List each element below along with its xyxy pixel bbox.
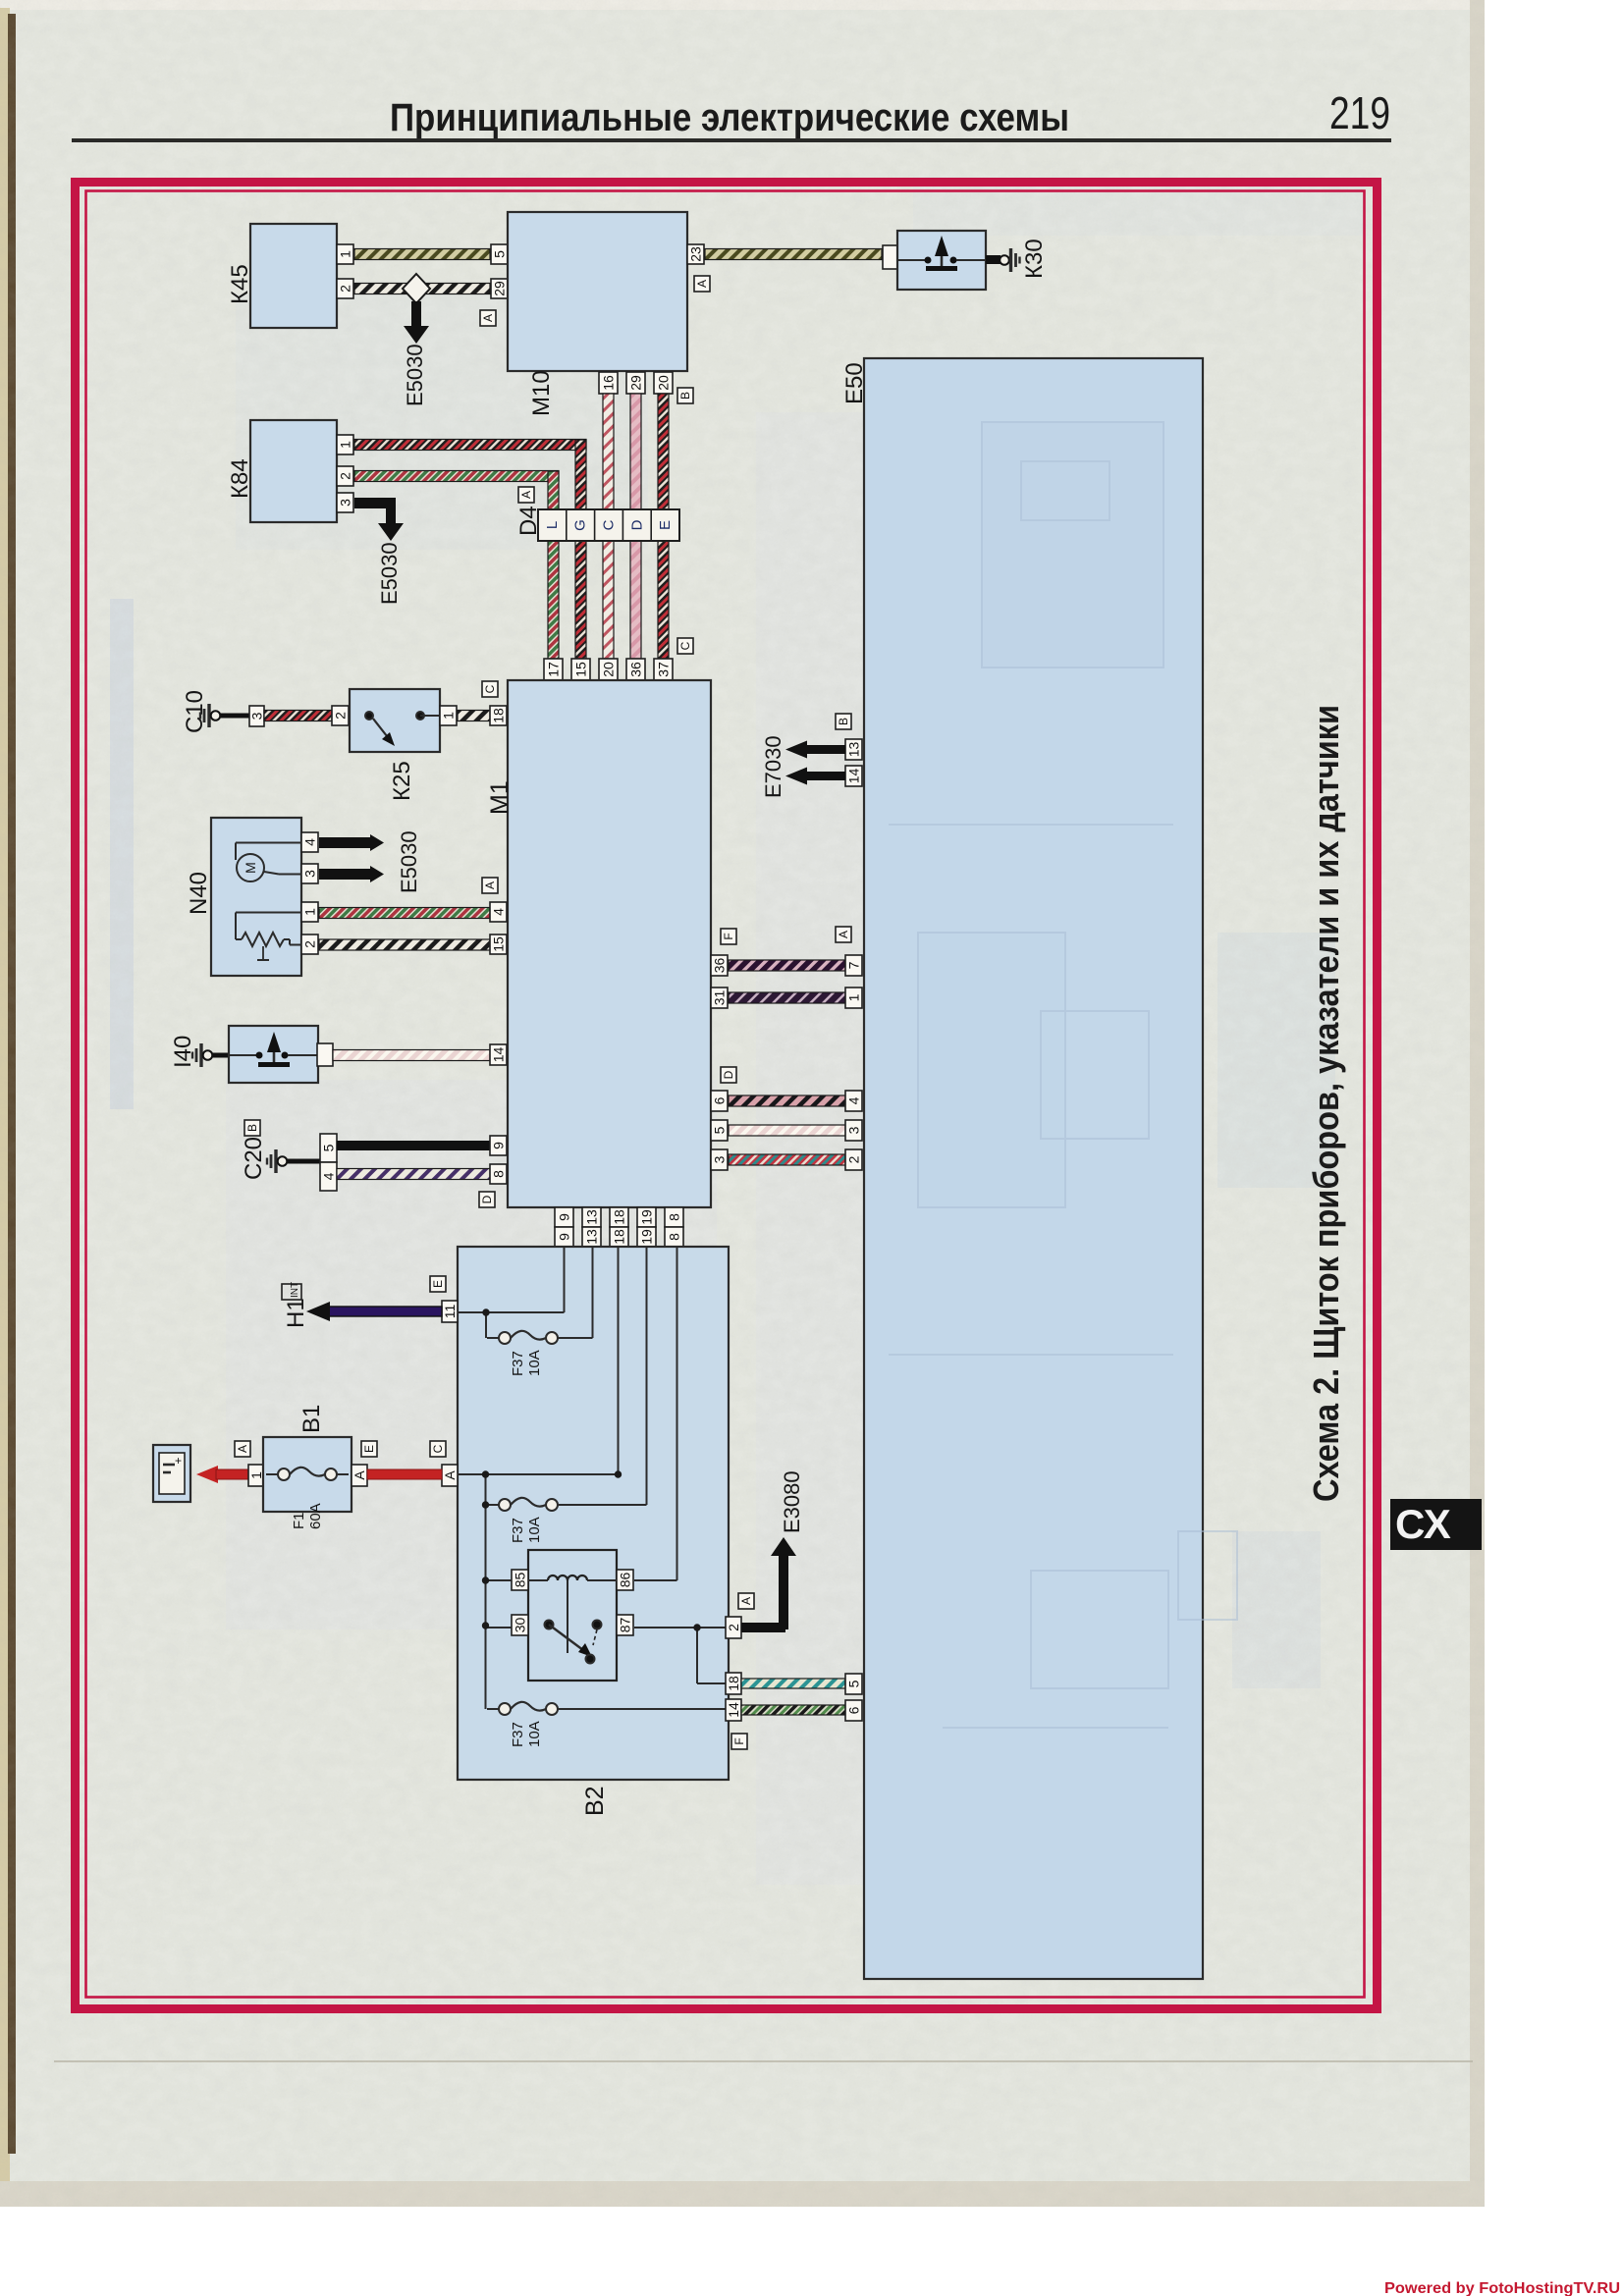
svg-text:7: 7 xyxy=(846,961,862,969)
svg-text:А: А xyxy=(442,1470,458,1480)
svg-text:F1: F1 xyxy=(291,1512,307,1529)
svg-text:6: 6 xyxy=(846,1706,862,1714)
svg-text:N40: N40 xyxy=(186,872,212,915)
svg-text:13: 13 xyxy=(584,1209,600,1225)
svg-text:8: 8 xyxy=(667,1233,682,1241)
svg-text:+: + xyxy=(175,1454,182,1468)
svg-text:3: 3 xyxy=(338,499,353,507)
svg-text:А: А xyxy=(481,314,495,322)
svg-text:36: 36 xyxy=(628,662,644,677)
svg-text:2: 2 xyxy=(302,940,318,948)
svg-text:15: 15 xyxy=(573,662,589,677)
svg-text:31: 31 xyxy=(712,990,728,1006)
svg-text:К30: К30 xyxy=(1021,239,1048,279)
svg-text:30: 30 xyxy=(513,1618,528,1633)
svg-text:29: 29 xyxy=(492,281,508,296)
svg-text:К45: К45 xyxy=(227,264,253,304)
svg-text:G: G xyxy=(572,519,589,531)
svg-text:10A: 10A xyxy=(526,1517,543,1543)
svg-text:Е5030: Е5030 xyxy=(377,542,402,605)
svg-text:10A: 10A xyxy=(526,1350,543,1376)
svg-text:11: 11 xyxy=(442,1305,458,1319)
svg-text:L: L xyxy=(544,521,561,529)
svg-text:К84: К84 xyxy=(227,458,253,499)
svg-text:4: 4 xyxy=(321,1172,337,1180)
svg-text:37: 37 xyxy=(656,662,672,677)
svg-text:А: А xyxy=(695,280,709,288)
svg-text:В2: В2 xyxy=(581,1786,609,1816)
svg-text:18: 18 xyxy=(612,1229,627,1245)
svg-text:5: 5 xyxy=(492,250,508,258)
svg-text:I40: I40 xyxy=(170,1036,196,1068)
svg-text:А: А xyxy=(739,1597,753,1605)
svg-text:1: 1 xyxy=(248,1471,264,1479)
svg-text:INT: INT xyxy=(290,1282,300,1298)
svg-text:8: 8 xyxy=(667,1213,682,1221)
svg-text:23: 23 xyxy=(688,246,704,262)
svg-text:1: 1 xyxy=(441,712,457,720)
svg-text:D4: D4 xyxy=(515,506,542,536)
svg-text:1: 1 xyxy=(846,993,862,1001)
svg-text:Е50: Е50 xyxy=(841,362,868,404)
svg-text:13: 13 xyxy=(846,742,862,758)
svg-text:14: 14 xyxy=(726,1702,741,1718)
svg-text:А: А xyxy=(236,1445,249,1453)
svg-text:М10: М10 xyxy=(528,370,555,416)
svg-text:F37: F37 xyxy=(510,1518,526,1543)
svg-text:5: 5 xyxy=(846,1680,862,1687)
svg-text:С: С xyxy=(678,641,692,650)
svg-text:15: 15 xyxy=(491,936,507,952)
svg-text:3: 3 xyxy=(302,870,318,878)
svg-text:А: А xyxy=(519,491,533,499)
svg-text:А: А xyxy=(837,931,850,938)
svg-text:С: С xyxy=(483,684,497,693)
svg-text:1: 1 xyxy=(338,250,353,258)
svg-text:Е: Е xyxy=(431,1280,445,1288)
svg-text:13: 13 xyxy=(584,1229,600,1245)
svg-text:Е7030: Е7030 xyxy=(761,735,785,798)
svg-text:1: 1 xyxy=(338,441,353,449)
svg-text:В: В xyxy=(678,392,692,400)
svg-text:219: 219 xyxy=(1329,87,1390,138)
svg-text:В1: В1 xyxy=(298,1405,325,1433)
svg-text:3: 3 xyxy=(846,1126,862,1134)
svg-text:29: 29 xyxy=(628,375,644,391)
svg-text:36: 36 xyxy=(712,958,728,974)
svg-text:60A: 60A xyxy=(307,1503,324,1529)
svg-text:16: 16 xyxy=(601,375,617,391)
svg-text:4: 4 xyxy=(491,908,507,916)
svg-text:F37: F37 xyxy=(510,1351,526,1376)
svg-text:Е5030: Е5030 xyxy=(403,344,427,406)
svg-text:2: 2 xyxy=(726,1624,741,1631)
svg-text:D: D xyxy=(628,519,645,530)
svg-text:9: 9 xyxy=(491,1142,507,1149)
svg-text:14: 14 xyxy=(491,1047,507,1063)
svg-text:F: F xyxy=(732,1737,746,1744)
svg-text:9: 9 xyxy=(557,1213,572,1221)
svg-text:4: 4 xyxy=(302,838,318,846)
svg-text:C: C xyxy=(601,519,618,530)
svg-text:8: 8 xyxy=(491,1170,507,1178)
svg-text:3: 3 xyxy=(712,1155,728,1163)
svg-text:В: В xyxy=(245,1124,259,1132)
svg-text:Е: Е xyxy=(362,1445,376,1453)
svg-text:С20: С20 xyxy=(241,1137,267,1180)
svg-text:17: 17 xyxy=(546,662,562,677)
svg-text:2: 2 xyxy=(338,285,353,293)
svg-text:Схема 2. Щиток приборов, указа: Схема 2. Щиток приборов, указатели и их … xyxy=(1306,705,1346,1502)
svg-text:Е3080: Е3080 xyxy=(780,1470,804,1533)
svg-text:М: М xyxy=(243,862,258,874)
svg-text:А: А xyxy=(352,1470,367,1480)
svg-text:D: D xyxy=(722,1070,735,1079)
svg-text:5: 5 xyxy=(321,1144,337,1151)
svg-text:86: 86 xyxy=(618,1573,633,1588)
svg-text:18: 18 xyxy=(612,1209,627,1225)
svg-text:6: 6 xyxy=(712,1096,728,1104)
svg-text:87: 87 xyxy=(618,1618,633,1633)
svg-text:2: 2 xyxy=(333,712,349,720)
svg-text:2: 2 xyxy=(338,472,353,480)
svg-text:19: 19 xyxy=(639,1209,655,1225)
svg-text:19: 19 xyxy=(639,1229,655,1245)
svg-text:А: А xyxy=(483,881,497,889)
svg-text:14: 14 xyxy=(846,769,862,784)
svg-text:СХ: СХ xyxy=(1395,1501,1451,1547)
svg-text:Е: Е xyxy=(657,520,674,530)
svg-text:В: В xyxy=(837,718,850,725)
svg-text:F37: F37 xyxy=(510,1722,526,1747)
svg-text:М1: М1 xyxy=(486,780,514,815)
svg-text:К25: К25 xyxy=(389,761,415,801)
svg-text:С: С xyxy=(431,1444,445,1453)
svg-text:Е5030: Е5030 xyxy=(397,830,421,893)
svg-text:18: 18 xyxy=(491,708,507,723)
svg-text:5: 5 xyxy=(712,1126,728,1134)
svg-text:Принципиальные электрические с: Принципиальные электрические схемы xyxy=(390,96,1069,139)
svg-text:Powered by FotoHostingTV.RU: Powered by FotoHostingTV.RU xyxy=(1384,2280,1620,2296)
svg-text:85: 85 xyxy=(513,1573,528,1588)
svg-text:D: D xyxy=(480,1195,494,1203)
svg-text:2: 2 xyxy=(846,1155,862,1163)
svg-text:20: 20 xyxy=(601,662,617,677)
svg-text:18: 18 xyxy=(726,1676,741,1691)
svg-text:1: 1 xyxy=(302,908,318,916)
svg-text:20: 20 xyxy=(656,375,672,391)
svg-text:3: 3 xyxy=(249,712,265,720)
svg-text:Н1: Н1 xyxy=(283,1298,309,1328)
svg-text:F: F xyxy=(722,933,735,939)
svg-text:10A: 10A xyxy=(526,1721,543,1747)
svg-text:9: 9 xyxy=(557,1233,572,1241)
svg-text:4: 4 xyxy=(846,1096,862,1104)
